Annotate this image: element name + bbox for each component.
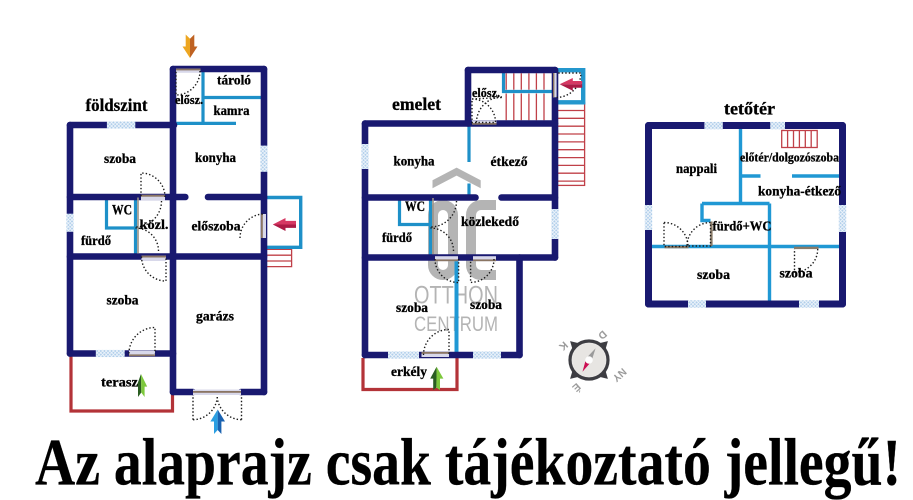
svg-text:közlekedő: közlekedő — [461, 215, 519, 230]
svg-text:elősz.: elősz. — [472, 85, 500, 100]
svg-text:földszint: földszint — [86, 95, 148, 115]
svg-text:szoba: szoba — [107, 294, 139, 309]
svg-text:elősz.: elősz. — [175, 92, 203, 107]
svg-text:konyha: konyha — [394, 155, 435, 170]
svg-text:WC: WC — [112, 203, 132, 219]
svg-text:NY: NY — [610, 365, 629, 384]
svg-text:konyha-étkező: konyha-étkező — [758, 185, 841, 200]
svg-text:fürdő: fürdő — [81, 234, 111, 249]
svg-text:erkély: erkély — [391, 365, 427, 380]
svg-text:D: D — [595, 328, 609, 342]
svg-text:fürdő+WC: fürdő+WC — [713, 220, 772, 235]
svg-text:szoba: szoba — [780, 267, 813, 282]
svg-text:közl.: közl. — [140, 218, 169, 233]
svg-text:étkező: étkező — [491, 155, 528, 170]
svg-text:tetőtér: tetőtér — [724, 99, 775, 119]
svg-text:szoba: szoba — [104, 152, 136, 167]
svg-text:előszoba: előszoba — [192, 220, 241, 235]
svg-text:terasz: terasz — [101, 376, 138, 391]
svg-text:É: É — [570, 380, 584, 394]
svg-text:tároló: tároló — [217, 74, 251, 89]
svg-text:K: K — [556, 339, 570, 353]
svg-text:fürdő: fürdő — [382, 231, 412, 246]
svg-text:szoba: szoba — [697, 268, 730, 283]
svg-text:WC: WC — [405, 199, 425, 215]
svg-text:konyha: konyha — [195, 151, 236, 166]
svg-text:szoba: szoba — [396, 301, 428, 316]
svg-text:kamra: kamra — [214, 104, 250, 119]
svg-text:garázs: garázs — [196, 310, 235, 325]
svg-text:emelet: emelet — [392, 94, 441, 114]
svg-text:Az alaprajz csak tájékoztató j: Az alaprajz csak tájékoztató jellegű! — [35, 426, 901, 500]
svg-text:nappali: nappali — [676, 162, 717, 177]
svg-text:szoba: szoba — [470, 298, 502, 313]
svg-text:előtér/dolgozószoba: előtér/dolgozószoba — [740, 150, 839, 165]
